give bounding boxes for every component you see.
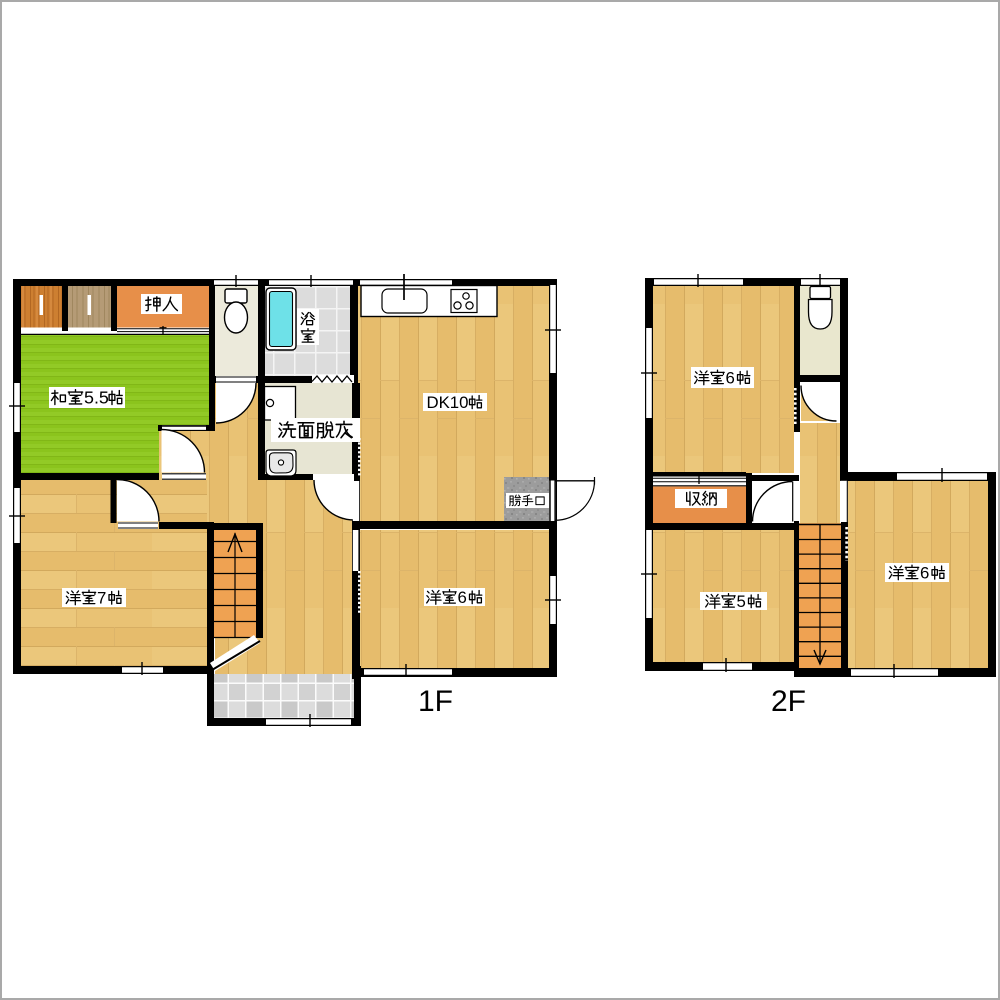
svg-text:5.5: 5.5 xyxy=(84,388,109,408)
svg-text:2F: 2F xyxy=(771,685,806,718)
svg-text:DK10: DK10 xyxy=(427,393,469,412)
svg-text:6: 6 xyxy=(726,368,735,387)
svg-text:1F: 1F xyxy=(418,685,453,718)
svg-text:6: 6 xyxy=(920,563,929,582)
svg-text:5: 5 xyxy=(737,592,746,611)
svg-text:6: 6 xyxy=(458,588,467,607)
svg-text:7: 7 xyxy=(97,588,106,607)
